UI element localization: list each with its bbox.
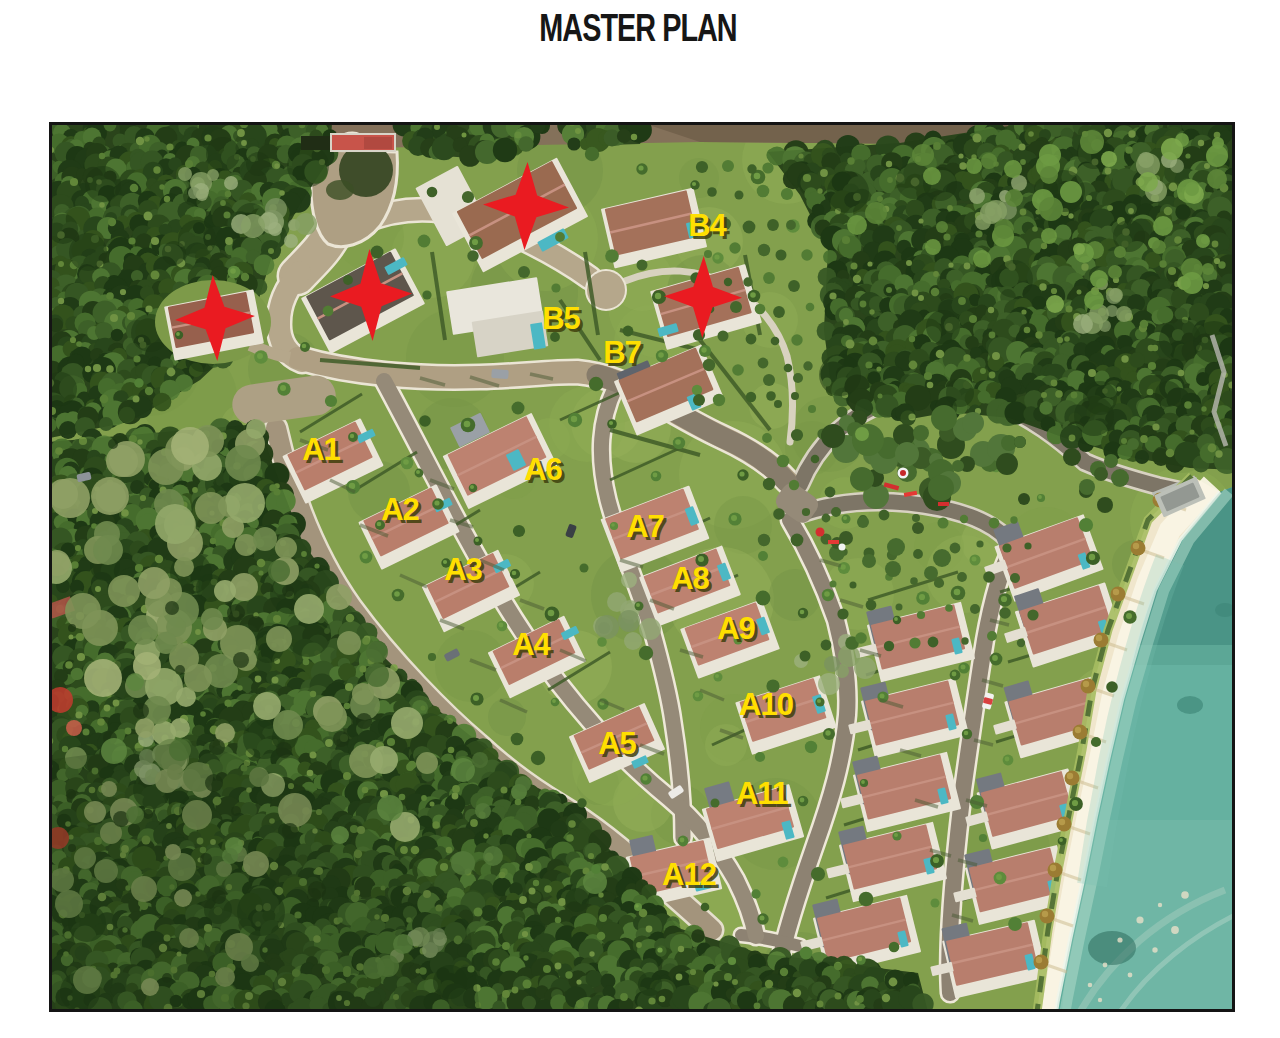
- svg-text:B4: B4: [688, 208, 727, 243]
- svg-text:A9: A9: [717, 611, 755, 646]
- svg-text:B5: B5: [542, 301, 580, 336]
- svg-text:A1: A1: [302, 432, 340, 467]
- svg-text:A4: A4: [512, 627, 551, 662]
- svg-text:A7: A7: [626, 509, 664, 544]
- svg-text:A12: A12: [662, 857, 716, 892]
- svg-text:A10: A10: [739, 687, 793, 722]
- svg-text:A11: A11: [736, 776, 789, 811]
- svg-text:A2: A2: [381, 492, 419, 527]
- svg-text:A3: A3: [444, 552, 482, 587]
- svg-text:A5: A5: [598, 726, 636, 761]
- svg-text:B7: B7: [603, 335, 641, 370]
- svg-text:A6: A6: [524, 452, 562, 487]
- svg-text:A8: A8: [671, 561, 709, 596]
